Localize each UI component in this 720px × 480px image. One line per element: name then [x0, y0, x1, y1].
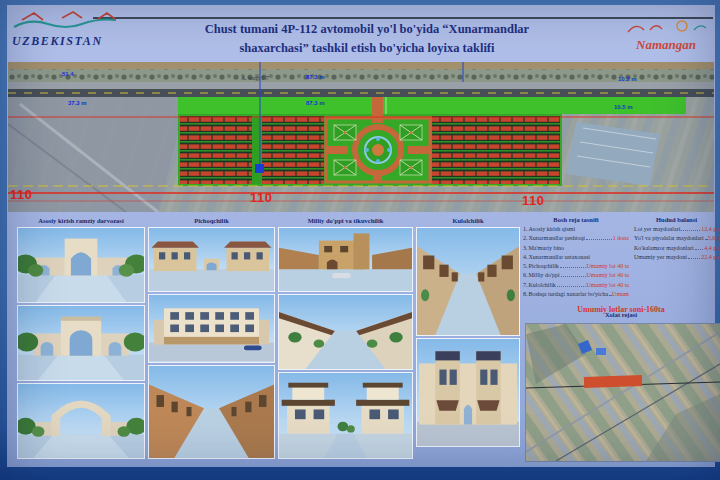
render-traditional-street [416, 227, 520, 336]
balance-item: Yo'l va piyodalar maydonlari5,6 ga [634, 234, 719, 243]
master-plan-strip: A. tezgi 0.7 51.4 37.3 m 87.3 m 87.3 m 1… [8, 62, 714, 212]
gallery-column-sewing [278, 227, 413, 459]
legend-item: 8.Boshqa turdagi xunarlar bo'yichaUmumiy… [523, 290, 629, 299]
balance-item: Lot yer maydonlari12,4 ga [634, 225, 719, 234]
render-corner-street [278, 227, 413, 292]
legend-item: 2.Xunarmandlar peshtoqi1 dona [523, 234, 629, 243]
uzbekistan-logo: UZBEKISTAN [12, 10, 140, 49]
namangan-logo-text: Namangan [619, 37, 713, 53]
dimension-label: 87.3 m [306, 74, 325, 80]
info-panel: Bosh reja tasnifi 1.Asosiy kirish qismi … [523, 216, 719, 314]
gallery-column-knifemaking [148, 227, 275, 459]
poster-title-line2: shaxarchasi” tashkil etish bo'yicha loyi… [165, 39, 569, 58]
legend-item: 4.Xunarmandlar ustaxonasi [523, 253, 629, 262]
namangan-logo: Namangan [619, 18, 713, 53]
station-marker-110: 110 [250, 191, 272, 204]
dimension-label: 51.4 [62, 71, 74, 77]
legend-title: Bosh reja tasnifi [523, 216, 629, 223]
legend-item: 1.Asosiy kirish qismi [523, 225, 629, 234]
render-workshop-building [148, 294, 275, 363]
area-balance: Hudud balansi Lot yer maydonlari12,4 ga … [634, 216, 719, 299]
render-adobe-street [148, 365, 275, 460]
plan-note: A. tezgi 0.7 [241, 75, 269, 81]
render-shop-facades [416, 338, 520, 447]
gallery-label-knifemaking: Pichoqchilik [148, 217, 275, 224]
dimension-label: 10.5 m [614, 104, 633, 110]
balance-item: Umumiy yer maydoni22,4 ga [634, 253, 719, 262]
situation-map [525, 323, 720, 462]
gallery-column-entrance [17, 227, 145, 459]
render-modern-street [278, 294, 413, 370]
uzbekistan-logo-art [12, 10, 132, 32]
gallery-label-entrance: Asosiy kirish ramziy darvozasi [17, 217, 145, 224]
uzbekistan-logo-text: UZBEKISTAN [12, 34, 140, 49]
dimension-label: 37.3 m [68, 100, 87, 106]
poster-photo: UZBEKISTAN Namangan Chust tumani 4P-112 … [0, 0, 720, 480]
namangan-logo-art [622, 18, 710, 36]
gallery-label-sewing: Milliy do'ppi va tikuvchilik [278, 217, 413, 224]
situation-map-title: Xolat rejasi [523, 311, 719, 318]
legend-item: 7.KulolchilikUmumiy lot 40 ta [523, 281, 629, 290]
dimension-label: 87.3 m [306, 100, 325, 106]
render-gate-1 [17, 227, 145, 303]
station-marker-110: 110 [10, 188, 32, 201]
situation-map-drawing [526, 324, 720, 461]
dimension-label: 10.2 m [618, 76, 637, 82]
legend-item: 3.Ma'muriy bino [523, 244, 629, 253]
legend-item: 5.PichoqchilikUmumiy lot 40 ta [523, 262, 629, 271]
render-twin-buildings [148, 227, 275, 292]
legend-item: 6.Milliy do'ppiUmumiy lot 40 ta [523, 271, 629, 280]
station-marker-110: 110 [522, 194, 544, 207]
poster-title: Chust tumani 4P-112 avtomobil yo'l bo'yi… [165, 20, 569, 58]
balance-item: Ko'kalamzor maydonlari4,4 ga [634, 244, 719, 253]
master-plan-legend: Bosh reja tasnifi 1.Asosiy kirish qismi … [523, 216, 629, 299]
render-gate-2 [17, 305, 145, 381]
gallery-column-pottery [416, 227, 520, 447]
master-plan-drawing [8, 62, 714, 212]
balance-title: Hudud balansi [634, 216, 719, 223]
gallery-label-pottery: Kulolchilik [416, 217, 520, 224]
poster-sheet: UZBEKISTAN Namangan Chust tumani 4P-112 … [7, 5, 715, 467]
render-gate-3 [17, 383, 145, 459]
render-villas [278, 372, 413, 459]
poster-title-line1: Chust tumani 4P-112 avtomobil yo'l bo'yi… [165, 20, 569, 39]
